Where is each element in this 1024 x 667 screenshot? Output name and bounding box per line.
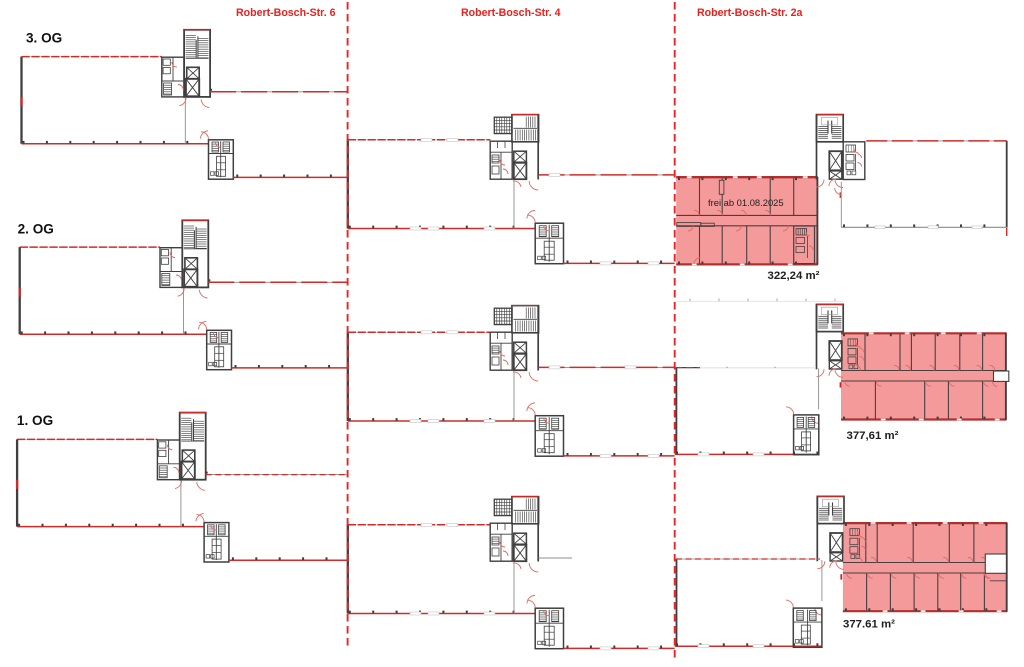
svg-text:377.61 m²: 377.61 m² [843, 618, 895, 630]
svg-text:3. OG: 3. OG [26, 31, 62, 46]
svg-text:frei ab 01.08.2025: frei ab 01.08.2025 [708, 197, 784, 208]
svg-text:377,61 m²: 377,61 m² [847, 430, 899, 442]
svg-text:322,24 m²: 322,24 m² [768, 270, 820, 282]
svg-text:Robert-Bosch-Str. 2a: Robert-Bosch-Str. 2a [697, 7, 802, 19]
svg-text:1. OG: 1. OG [17, 413, 53, 428]
svg-text:Robert-Bosch-Str. 4: Robert-Bosch-Str. 4 [461, 7, 561, 19]
svg-text:2. OG: 2. OG [18, 222, 54, 237]
svg-text:Robert-Bosch-Str. 6: Robert-Bosch-Str. 6 [236, 7, 336, 19]
